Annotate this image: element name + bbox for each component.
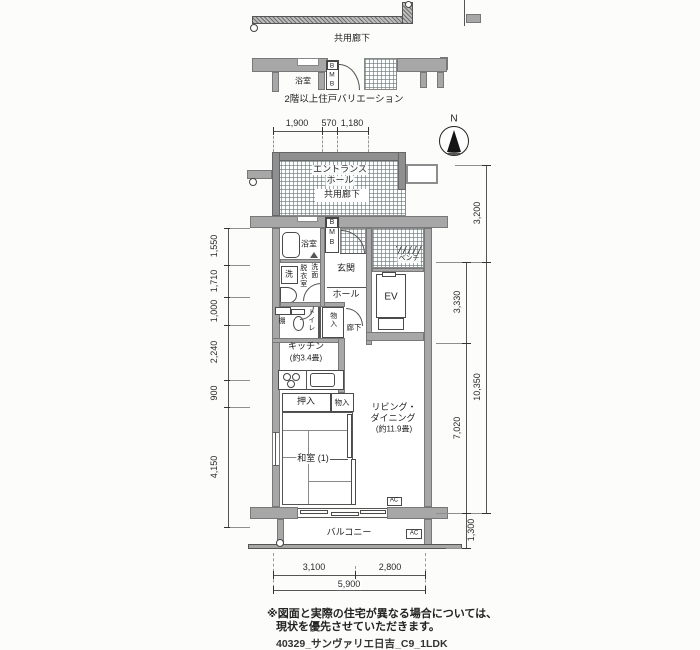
dim-tick (355, 571, 356, 579)
dim-label-top: 1,900 (286, 119, 309, 129)
dim-tick (462, 548, 471, 549)
wall-fragment-line (464, 0, 465, 26)
sash-panel (300, 510, 328, 514)
dim-tick (273, 586, 274, 594)
dim-label-bottom-total: 5,900 (337, 580, 362, 590)
porch-box (406, 164, 438, 184)
wall-fragment (466, 14, 481, 23)
witness-line (230, 228, 250, 229)
variation-window (297, 58, 319, 66)
dim-tick (482, 513, 491, 514)
dim-label-right-inner: 3,330 (453, 291, 463, 314)
dim-line-bottom-total (273, 590, 425, 591)
dim-line-right-outer (486, 165, 487, 513)
living-label: ダイニング (370, 414, 415, 424)
entrance-wall-top (272, 152, 406, 161)
variation-wall-stub (420, 72, 427, 88)
dim-label-top: 570 (321, 119, 336, 129)
dim-label-bottom: 3,100 (303, 563, 326, 573)
drawing-id: 40329_サンヴァリエ日吉_C9_1LDK (276, 636, 448, 650)
witness-line (230, 297, 250, 298)
dim-line-bottom (273, 575, 425, 576)
shelf-label: 棚 (279, 318, 286, 326)
variation-caption: 2階以上住戸バリエーション (284, 95, 403, 105)
dim-label-bottom: 2,800 (379, 563, 402, 573)
ac-label: AC (410, 531, 418, 538)
fusuma-panel (351, 459, 356, 505)
disclaimer-line2: 現状を優先させていただきます。 (276, 618, 440, 634)
north-label: N (450, 114, 457, 125)
dim-label-right-outer: 10,350 (473, 373, 483, 401)
pipe-shaft-icon (405, 1, 412, 8)
dim-tick (337, 127, 338, 135)
witness-line (337, 136, 338, 152)
kitchen-size-label: (約3.4畳) (290, 355, 322, 364)
hall-step-line (327, 287, 366, 288)
elevator-label: EV (384, 292, 397, 303)
wall-band-top (250, 216, 448, 228)
entrance-hall-label: エントランス (312, 165, 368, 175)
witness-line (322, 136, 323, 152)
variation-wall-stub (272, 72, 279, 92)
dim-tick (273, 571, 274, 579)
wall-toilet-divider (318, 307, 321, 338)
north-base (447, 152, 461, 155)
entrance-wall-left (272, 152, 280, 216)
bathtub-icon (282, 232, 300, 258)
upper-corridor-label: 共用廊下 (334, 34, 370, 44)
meter-letter: B (330, 219, 335, 227)
drain-icon (276, 539, 284, 547)
fusuma-panel (347, 414, 352, 458)
meter-letter: B (330, 62, 334, 69)
dim-label-right-outer: 3,200 (473, 202, 483, 225)
balcony-label: バルコニー (327, 528, 372, 538)
common-corridor-label: 共用廊下 (324, 190, 360, 200)
entrance-hall-label: ホール (325, 176, 354, 186)
oshiire-label: 押入 (297, 397, 315, 407)
variation-door-arc (339, 64, 360, 90)
dim-tick (482, 262, 491, 263)
bench-label: ベンチ (398, 255, 421, 263)
meter-letter: B (330, 80, 334, 87)
dim-tick (462, 262, 471, 263)
dim-line-right-inner (466, 262, 467, 548)
tatami-line (283, 430, 352, 431)
dim-tick (425, 586, 426, 594)
tatami-line (308, 430, 309, 504)
dim-label-left: 1,000 (210, 300, 220, 323)
variation-corridor-hatch (364, 58, 397, 90)
floor-plan-sheet: 共用廊下 B M B 浴室 2階以上住戸バリエーション 1,900 570 1,… (0, 0, 700, 650)
dim-tick (368, 127, 369, 135)
dressing-room-label: 脱衣室 (299, 264, 307, 288)
kitchen-counter-divider (306, 370, 307, 390)
balcony-wall-right (424, 519, 432, 546)
genkan-label: 玄関 (337, 264, 355, 274)
dim-line-left (228, 228, 229, 527)
living-size-label: (約11.9畳) (376, 426, 412, 435)
meter-letter: B (330, 239, 335, 247)
meter-letter: M (329, 71, 334, 78)
dim-tick (462, 513, 471, 514)
washitsu-leader-line (330, 459, 348, 460)
dim-label-left: 4,150 (210, 456, 220, 479)
ac-label: AC (390, 498, 398, 505)
hall-label: ホール (332, 290, 359, 300)
witness-line (230, 407, 250, 408)
dim-label-left: 1,710 (210, 270, 220, 293)
bath-door-icon (310, 252, 318, 258)
pipe-shaft-icon (250, 24, 258, 32)
shelf-box (275, 307, 291, 315)
variation-wall-stub (318, 72, 325, 90)
hall-closet-label: 物入 (329, 312, 337, 328)
elevator-door (378, 318, 404, 330)
balcony-sash-line (298, 517, 387, 518)
dim-label-right-inner: 1,300 (467, 519, 477, 542)
witness-line (230, 325, 250, 326)
sash-panel (360, 510, 386, 514)
wall-band-bottom-left (250, 507, 298, 519)
window-left (273, 432, 279, 466)
tatami-line (308, 481, 352, 482)
dim-line-top (273, 131, 368, 132)
drain-pipe-icon (249, 178, 257, 186)
window-left-line (275, 432, 276, 466)
witness-line (273, 136, 274, 152)
kitchen-label: キッチン (288, 342, 324, 352)
sink-icon (310, 373, 335, 387)
elevator-car-top (382, 272, 396, 277)
witness-line (368, 136, 369, 152)
ld-closet-label: 物入 (335, 399, 350, 407)
witness-line (230, 265, 250, 266)
washitsu-label: 和室 (1) (296, 454, 330, 464)
north-needle-icon (447, 130, 461, 152)
witness-line (230, 380, 250, 381)
genkan-step-line (340, 253, 366, 254)
dim-label-left: 900 (210, 385, 220, 400)
living-label: リビング・ (371, 403, 416, 413)
washbasin-label: 洗面 (310, 263, 318, 279)
entrance-wall-right (398, 152, 406, 190)
variation-wall-band (397, 58, 447, 72)
variation-bath-label: 浴室 (295, 78, 311, 87)
dim-label-left: 1,550 (210, 235, 220, 258)
dim-label-top: 1,180 (341, 119, 364, 129)
dim-tick (425, 571, 426, 579)
variation-wall-stub (437, 72, 444, 88)
bench-icon (396, 246, 422, 254)
dim-tick (273, 127, 274, 135)
washer-label: 洗 (285, 271, 293, 280)
dim-tick (462, 343, 471, 344)
sash-panel (331, 512, 359, 516)
wall-outer-right (424, 228, 432, 507)
balcony-sash-line (298, 508, 387, 509)
window-top (297, 216, 318, 222)
dim-tick (482, 165, 491, 166)
meter-letter: M (329, 229, 335, 237)
wall-ev-bottom (366, 332, 424, 341)
stove-burner-icon (287, 380, 295, 388)
witness-line (230, 527, 250, 528)
dim-label-right-inner: 7,020 (453, 417, 463, 440)
dim-label-left: 2,240 (210, 341, 220, 364)
bath-label: 浴室 (301, 241, 317, 250)
upper-corridor-wall (252, 16, 403, 24)
